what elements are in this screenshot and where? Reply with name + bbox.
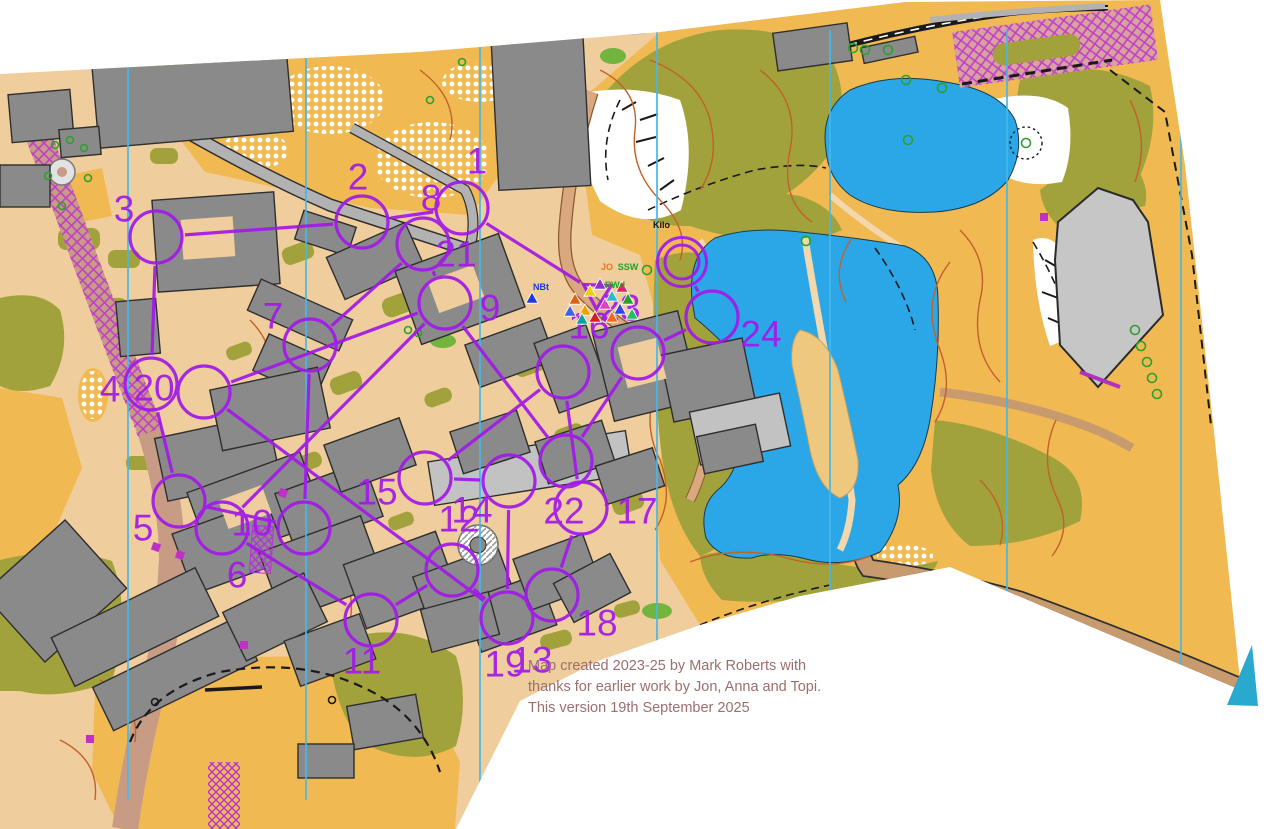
control-number-21: 21 [435,234,476,275]
control-number-2: 2 [348,157,369,198]
control-number-8: 8 [421,178,442,219]
attribution-line1: Map created 2023-25 by Mark Roberts with [528,658,806,674]
control-number-22: 22 [543,491,584,532]
control-number-18: 18 [576,603,617,644]
map-canvas: Kilo 12345678910111213141516171819202122… [0,0,1274,829]
gps-runner-label: RWd [605,280,625,290]
orienteering-map-page: Kilo 12345678910111213141516171819202122… [0,0,1274,829]
control-number-19: 19 [484,644,525,685]
control-number-1: 1 [467,141,488,182]
course-leg [454,479,480,480]
control-number-20: 20 [133,368,174,409]
control-number-15: 15 [356,472,397,513]
lake-upper [825,78,1019,212]
control-number-11: 11 [343,641,381,682]
control-number-7: 7 [263,296,284,337]
gps-runner-label: JO [601,262,613,272]
control-number-24: 24 [740,314,781,355]
place-label: Kilo [653,220,671,230]
course-leg [507,510,508,589]
attribution-line2: thanks for earlier work by Jon, Anna and… [528,679,821,695]
attribution: Map created 2023-25 by Mark Roberts with… [528,658,821,716]
gps-runner-label: SSW [618,262,639,272]
attribution-line3: This version 19th September 2025 [528,700,750,716]
control-number-5: 5 [133,508,154,549]
control-number-9: 9 [480,288,501,329]
gps-runner-label: NBt [533,282,549,292]
control-number-14: 14 [451,490,492,531]
control-number-6: 6 [227,555,248,596]
control-number-17: 17 [616,491,657,532]
control-number-4: 4 [100,369,121,410]
control-number-10: 10 [231,503,272,544]
control-number-3: 3 [114,189,135,230]
